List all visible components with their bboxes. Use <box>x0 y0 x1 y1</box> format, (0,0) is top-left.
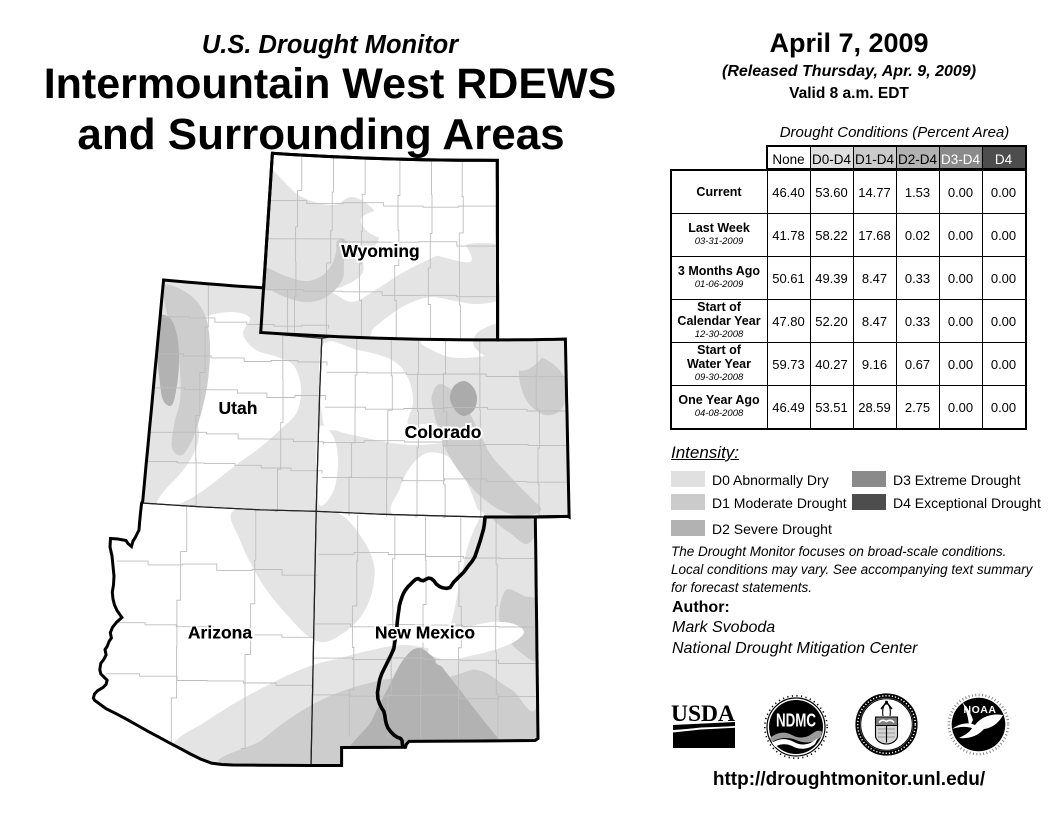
svg-text:New Mexico: New Mexico <box>375 623 475 643</box>
svg-text:USDA: USDA <box>671 701 735 726</box>
svg-text:Colorado: Colorado <box>405 422 482 442</box>
svg-text:Utah: Utah <box>219 398 258 418</box>
svg-text:Wyoming: Wyoming <box>341 241 419 261</box>
svg-text:Arizona: Arizona <box>188 623 252 643</box>
svg-text:NDMC: NDMC <box>776 710 816 731</box>
